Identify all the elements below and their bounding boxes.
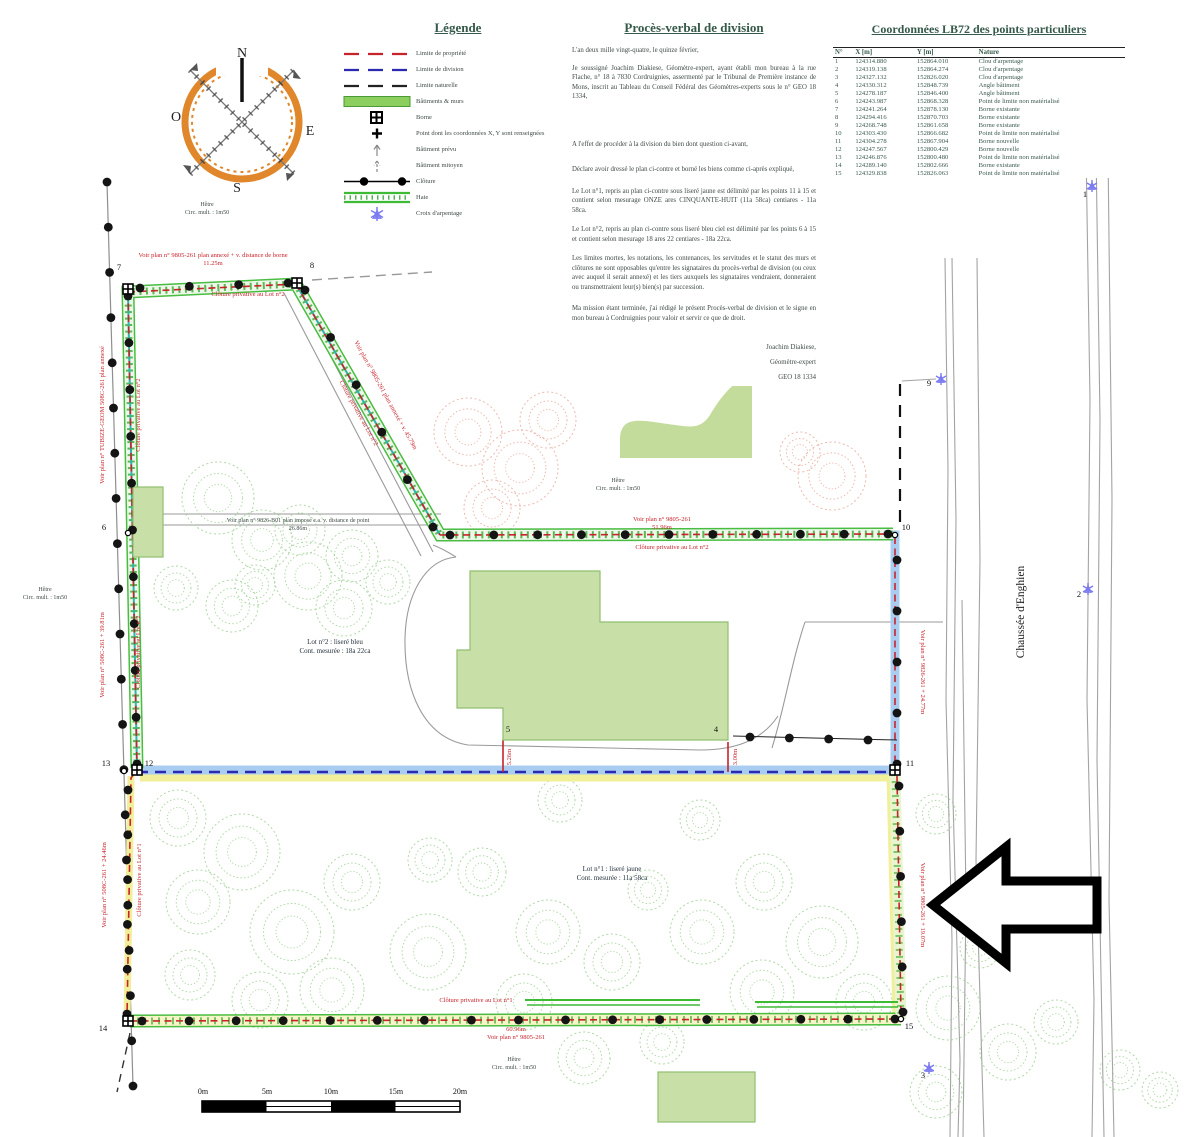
- fence-dot: [796, 1015, 805, 1024]
- tree-sketch: [922, 800, 949, 827]
- tree-sketch: [745, 863, 783, 901]
- coords-cell: 152861.658: [915, 122, 977, 130]
- plan-label: 10: [902, 522, 911, 532]
- fence-dot: [840, 530, 849, 539]
- plan-label: 3.00m: [732, 749, 739, 765]
- tree-sketch: [1148, 1078, 1172, 1102]
- coords-cell: Borne existante: [977, 122, 1125, 130]
- legend-item-label: Bâtiment mitoyen: [416, 162, 463, 169]
- tree-sketch: [792, 444, 807, 459]
- tree-sketch: [445, 409, 491, 455]
- small-building-left: [133, 487, 163, 557]
- plan-label: Clôture privative au Lot n°1: [439, 997, 512, 1004]
- fence-dot: [121, 810, 130, 819]
- tree-sketch: [173, 958, 207, 992]
- fence-dot: [895, 827, 904, 836]
- plan-label: Hêtre: [611, 478, 625, 484]
- tree-sketch: [161, 573, 191, 603]
- point-xy-icon: [338, 127, 416, 140]
- tree-sketch: [552, 792, 569, 809]
- tree-sketch: [536, 920, 560, 944]
- coords-row: 10124303.430152866.682Point de limite no…: [833, 130, 1125, 138]
- fence-dot: [279, 1016, 288, 1025]
- tree-sketch: [654, 1034, 671, 1051]
- plan-label: Hêtre: [507, 1057, 521, 1063]
- coords-cell: Angle bâtiment: [977, 82, 1125, 90]
- plan-label: Voir plan n° TUBIZE-GEOM 508C-261 plan a…: [99, 346, 106, 484]
- survey-plan-page: Voir plan n° 9805-261 plan annexé + v. d…: [0, 0, 1200, 1137]
- coords-cell: Borne nouvelle: [977, 138, 1125, 146]
- survey-cross-icon: [1087, 180, 1097, 192]
- coords-cell: 124304.278: [853, 138, 915, 146]
- plan-label: 5: [506, 724, 510, 734]
- tree-sketch: [640, 882, 655, 897]
- plan-label: Voir plan n° 9805-261: [487, 1034, 545, 1041]
- borne-marker: [123, 1016, 133, 1026]
- fence-dot: [123, 830, 132, 839]
- plan-label: 8: [310, 260, 314, 270]
- coords-column-header: X [m]: [853, 48, 915, 58]
- fence-dot: [844, 1015, 853, 1024]
- tree-sketch: [526, 910, 570, 954]
- fence-dot: [893, 709, 902, 718]
- legend-item: Limite de propriété: [338, 46, 578, 61]
- tree-sketch: [222, 596, 242, 616]
- fence-dot: [110, 449, 119, 458]
- plan-label: Cont. mesurée : 18a 22ca: [300, 647, 372, 655]
- tree-sketch: [324, 854, 380, 910]
- fence-dot: [746, 733, 755, 742]
- plan-label: O: [171, 110, 181, 125]
- legend-item: Borne: [338, 110, 578, 125]
- pv-paragraph: Les limites mortes, les notations, les c…: [572, 254, 816, 292]
- plan-label: 26.86m: [289, 526, 308, 532]
- tree-sketch: [936, 996, 960, 1020]
- tree-sketch: [214, 588, 249, 623]
- coords-cell: 124330.312: [853, 82, 915, 90]
- plan-label: Circ. mult. : 1m50: [23, 595, 67, 601]
- coords-cell: 124319.138: [853, 66, 915, 74]
- survey-cross-icon: [924, 1062, 934, 1074]
- fence-dot: [864, 736, 873, 745]
- tree-sketch: [593, 943, 631, 981]
- fence-dot: [373, 1016, 382, 1025]
- plan-label: 20m: [453, 1087, 468, 1096]
- tree-sketch: [194, 474, 243, 523]
- pv-paragraph: Je soussigné Joachim Diakiese, Géomètre-…: [572, 64, 816, 102]
- fence-dot: [898, 962, 907, 971]
- tree-sketch: [545, 785, 575, 815]
- tree-sketch: [916, 976, 980, 1040]
- fence-dot: [132, 713, 141, 722]
- tree-sketch: [380, 574, 397, 591]
- coords-cell: Clou d'arpentage: [977, 66, 1125, 74]
- legend-item: Clôture: [338, 174, 578, 189]
- tree-sketch: [680, 910, 724, 954]
- fence-dot: [103, 178, 112, 187]
- tree-sketch: [285, 553, 331, 599]
- coords-cell: 152800.480: [915, 154, 977, 162]
- tree-sketch: [241, 981, 279, 1019]
- coords-cell: 152826.020: [915, 74, 977, 82]
- plan-label: Voir plan n° 9826-B01 plan imposé e.a. v…: [227, 517, 370, 524]
- coords-row: 2124319.138152864.274Clou d'arpentage: [833, 66, 1125, 74]
- plan-label: 12: [145, 758, 154, 768]
- plan-label: Voir plan n° 9805-261: [633, 516, 691, 523]
- legend-item: Limite naturelle: [338, 78, 578, 93]
- plan-label: 15: [905, 1021, 914, 1031]
- coords-cell: Borne existante: [977, 114, 1125, 122]
- legend-panel: Légende Limite de propriétéLimite de div…: [338, 20, 578, 222]
- fence-dot: [702, 1015, 711, 1024]
- coords-cell: 3: [833, 74, 853, 82]
- tree-sketch: [166, 870, 230, 934]
- tree-sketch: [466, 856, 499, 889]
- pv-paragraph: Ma mission étant terminée, j'ai rédigé l…: [572, 304, 816, 323]
- coords-row: 13124246.876152800.480Point de limite no…: [833, 154, 1125, 162]
- survey-cross-icon: [936, 373, 946, 385]
- tree-sketch: [692, 812, 707, 827]
- plan-label: 5.26m: [506, 749, 513, 765]
- legend-item-label: Clôture: [416, 178, 436, 185]
- tree-sketch: [736, 854, 792, 910]
- coords-cell: 124303.430: [853, 130, 915, 138]
- plan-label: Clôture privative au Lot n°2: [135, 615, 142, 688]
- compass-rose: [183, 44, 301, 181]
- fence-dot: [113, 539, 122, 548]
- tree-sketch: [276, 916, 308, 948]
- pv-signature-line: Géomètre-expert: [572, 356, 816, 371]
- coords-cell: Clou d'arpentage: [977, 74, 1125, 82]
- tree-sketch: [168, 580, 185, 597]
- coords-row: 9124268.748152861.658Borne existante: [833, 122, 1125, 130]
- coords-row: 11124304.278152867.904Borne nouvelle: [833, 138, 1125, 146]
- pv-paragraph: A l'effet de procéder à la division du b…: [572, 140, 816, 150]
- tree-sketch: [928, 806, 943, 821]
- plan-label: Voir plan n° 508C-261 + 24.46m: [101, 842, 108, 928]
- borne-icon: [338, 111, 416, 124]
- coords-cell: 1: [833, 58, 853, 67]
- coords-cell: 12: [833, 146, 853, 154]
- fence-dot: [621, 530, 630, 539]
- plan-label: 2: [1077, 589, 1081, 599]
- coords-title: Coordonnées LB72 des points particuliers: [833, 22, 1125, 37]
- fence-dot: [326, 1016, 335, 1025]
- coords-cell: Point de limite non matérialisé: [977, 130, 1125, 138]
- plan-label: Lot n°1 : liseré jaune: [583, 865, 642, 873]
- fence-dot: [665, 530, 674, 539]
- plan-label: Circ. mult. : 1m50: [492, 1065, 536, 1071]
- bat-prev-icon: [338, 142, 416, 157]
- tree-sketch: [263, 903, 320, 960]
- tree-sketch: [1153, 1083, 1167, 1097]
- tree-sketch: [989, 1033, 1027, 1071]
- legend-item: Bâtiment mitoyen: [338, 158, 578, 173]
- legend-item: Haie: [338, 190, 578, 205]
- fence-dot: [123, 901, 132, 910]
- tree-sketch: [325, 589, 363, 627]
- plan-label: Hêtre: [200, 202, 214, 208]
- plan-label: 11: [906, 758, 914, 768]
- tree-sketch: [584, 934, 640, 990]
- tree-sketch: [159, 799, 197, 837]
- plan-label: Clôture privative au Lot n°1: [136, 843, 143, 916]
- tree-sketch: [926, 986, 970, 1030]
- fence-dot: [114, 584, 123, 593]
- plan-label: Clôture privative au Lot n°2: [211, 291, 284, 298]
- plan-label: S: [233, 181, 241, 196]
- coords-cell: Angle bâtiment: [977, 90, 1125, 98]
- coords-cell: 124243.987: [853, 98, 915, 106]
- fence-dot: [897, 917, 906, 926]
- tree-sketch: [537, 409, 558, 430]
- main-building: [457, 571, 728, 740]
- fence-dot: [377, 428, 386, 437]
- tree-sketch: [216, 826, 268, 878]
- fence-dot: [577, 530, 586, 539]
- coords-cell: Borne nouvelle: [977, 146, 1125, 154]
- coords-cell: 6: [833, 98, 853, 106]
- fence-dot: [884, 530, 893, 539]
- coords-cell: 124314.880: [853, 58, 915, 67]
- fence-dot: [185, 282, 194, 291]
- legend-item-label: Croix d'arpentage: [416, 210, 462, 217]
- prop-line-icon: [338, 49, 416, 59]
- plan-label: 15m: [389, 1087, 404, 1096]
- fence-dot: [403, 475, 412, 484]
- fence-dot: [125, 946, 134, 955]
- coords-column-header: N°: [833, 48, 853, 58]
- coords-cell: Point de limite non matérialisé: [977, 98, 1125, 106]
- fence-dot: [124, 338, 133, 347]
- tree-sketch: [333, 863, 371, 901]
- legend-title: Légende: [338, 20, 578, 36]
- borne-marker: [123, 284, 133, 294]
- fence-dot: [514, 1016, 523, 1025]
- tree-sketch: [808, 928, 835, 955]
- plan-label: 51.96m: [652, 524, 672, 531]
- coords-cell: 9: [833, 122, 853, 130]
- plan-label: Cont. mesurée : 11a 58ca: [577, 874, 649, 882]
- haie-icon: [338, 191, 416, 204]
- tree-sketch: [1106, 1056, 1133, 1083]
- fence-dot: [127, 1036, 136, 1045]
- fence-dot: [352, 380, 361, 389]
- coords-cell: 124246.876: [853, 154, 915, 162]
- fence-dot: [117, 675, 126, 684]
- tree-sketch: [150, 790, 206, 846]
- legend-item-label: Point dont les coordonnées X, Y sont ren…: [416, 130, 544, 137]
- tree-sketch: [251, 529, 274, 552]
- fence-dot: [489, 531, 498, 540]
- legend-rows: Limite de propriétéLimite de divisionLim…: [338, 46, 578, 221]
- tree-sketch: [1112, 1062, 1127, 1077]
- tree-sketch: [334, 538, 369, 573]
- coords-cell: 152848.739: [915, 82, 977, 90]
- fence-dot: [116, 630, 125, 639]
- tree-sketch: [574, 1048, 594, 1068]
- limit-point-marker: [121, 768, 126, 773]
- tree-sketch: [206, 580, 258, 632]
- coords-row: 7124241.264152878.130Borne existante: [833, 106, 1125, 114]
- tree-sketch: [1048, 1014, 1065, 1031]
- coords-cell: 152826.063: [915, 170, 977, 178]
- div-line-icon: [338, 65, 416, 75]
- plan-label: Clôture privative au Lot n°2: [635, 544, 708, 551]
- plan-label: 1: [1083, 189, 1087, 199]
- tree-sketch: [798, 918, 847, 967]
- coords-cell: 152864.010: [915, 58, 977, 67]
- tree-sketch: [670, 900, 734, 964]
- coords-cell: 152868.328: [915, 98, 977, 106]
- tree-sketch: [300, 958, 364, 1022]
- legend-item-label: Bâtiments & murs: [416, 98, 464, 105]
- tree-sketch: [809, 453, 855, 499]
- fence-dot: [824, 735, 833, 744]
- plan-label: 13: [102, 758, 111, 768]
- plan-label: 11.25m: [203, 260, 222, 267]
- tree-sketch: [786, 438, 813, 465]
- tree-sketch: [176, 880, 220, 924]
- fence-dot: [893, 607, 902, 616]
- legend-item-label: Limite naturelle: [416, 82, 458, 89]
- vegetation-patch: [620, 376, 752, 458]
- fence-dot: [118, 720, 127, 729]
- borne-marker: [890, 765, 900, 775]
- coords-row: 6124243.987152868.328Point de limite non…: [833, 98, 1125, 106]
- plan-label: 7: [117, 262, 121, 272]
- tree-sketch: [520, 392, 576, 448]
- borne-marker: [132, 765, 142, 775]
- fence-dot: [129, 1082, 138, 1091]
- fence-dot: [112, 494, 121, 503]
- fence-dot: [122, 856, 131, 865]
- legend-item: Bâtiments & murs: [338, 94, 578, 109]
- limit-point-marker: [892, 532, 897, 537]
- legend-item-label: Limite de propriété: [416, 50, 466, 57]
- coords-cell: 124294.416: [853, 114, 915, 122]
- fence-dot: [752, 530, 761, 539]
- fence-dot: [533, 530, 542, 539]
- coords-cell: 13: [833, 154, 853, 162]
- coords-cell: 152864.274: [915, 66, 977, 74]
- plan-label: 60.96m: [506, 1026, 526, 1033]
- lot1-boundary: [127, 776, 896, 1018]
- tree-sketch: [181, 966, 200, 985]
- bat-mit-icon: [338, 158, 416, 173]
- limit-point-marker: [125, 530, 130, 535]
- coords-cell: 11: [833, 138, 853, 146]
- fence-dot: [893, 556, 902, 565]
- lot1-hedge: [130, 774, 901, 1021]
- fence-dot: [124, 786, 133, 795]
- tree-sketch: [373, 567, 403, 597]
- tree-sketch: [414, 938, 443, 967]
- fence-dot: [326, 333, 335, 342]
- tree-sketch: [786, 906, 858, 978]
- tree-sketch: [753, 871, 774, 892]
- legend-item: Point dont les coordonnées X, Y sont ren…: [338, 126, 578, 141]
- tree-sketch: [506, 454, 535, 483]
- coords-table: N°X [m]Y [m]Nature 1124314.880152864.010…: [833, 47, 1125, 178]
- tree-sketch: [434, 398, 502, 466]
- coords-cell: 152878.130: [915, 106, 977, 114]
- tree-sketch: [686, 806, 713, 833]
- coords-cell: 152870.703: [915, 114, 977, 122]
- fence-dot: [108, 358, 117, 367]
- plan-label: 5m: [262, 1087, 273, 1096]
- tree-sketch: [516, 900, 580, 964]
- plan-label: 14: [99, 1023, 108, 1033]
- tree-sketch: [473, 863, 491, 881]
- tree-sketch: [186, 890, 210, 914]
- tree-sketch: [415, 845, 445, 875]
- coords-cell: Borne existante: [977, 106, 1125, 114]
- tree-sketch: [228, 838, 257, 867]
- tree-sketch: [1041, 1007, 1071, 1037]
- pv-paragraph: L'an deux mille vingt-quatre, le quinze …: [572, 46, 816, 56]
- tree-sketch: [690, 920, 714, 944]
- tree-sketch: [819, 463, 845, 489]
- fence-dot: [136, 284, 145, 293]
- fence-dot: [105, 268, 114, 277]
- plan-label: Voir plan n° 9805-261 plan annexé + v. d…: [138, 252, 287, 259]
- legend-item-label: Borne: [416, 114, 432, 121]
- fence-dot: [185, 1016, 194, 1025]
- coords-row: 1124314.880152864.010Clou d'arpentage: [833, 58, 1125, 67]
- tree-sketch: [482, 430, 558, 506]
- fence-dot: [284, 279, 293, 288]
- fence-dot: [138, 1017, 147, 1026]
- coords-column-header: Y [m]: [915, 48, 977, 58]
- tree-sketch: [422, 852, 439, 869]
- fence-dot: [126, 991, 135, 1000]
- plan-label: E: [306, 124, 315, 139]
- tree-sketch: [390, 914, 466, 990]
- coords-cell: 124247.567: [853, 146, 915, 154]
- coords-cell: 124329.838: [853, 170, 915, 178]
- pv-signature-line: Joachim Diakiese,: [572, 341, 816, 356]
- tree-sketch: [997, 1041, 1018, 1062]
- pv-paragraph: Le Lot n°1, repris au plan ci-contre sou…: [572, 187, 816, 216]
- pv-body: L'an deux mille vingt-quatre, le quinze …: [572, 46, 816, 323]
- plan-label: 0m: [198, 1087, 209, 1096]
- plan-label: Circ. mult. : 1m50: [185, 210, 229, 216]
- pv-paragraph: Déclare avoir dressé le plan ci-contre e…: [572, 165, 816, 175]
- coords-row: 15124329.838152826.063Point de limite no…: [833, 170, 1125, 178]
- fence-dot: [893, 658, 902, 667]
- pv-paragraph: Le Lot n°2, repris au plan ci-contre sou…: [572, 225, 816, 244]
- coords-cell: 124241.264: [853, 106, 915, 114]
- survey-cross-icon: [1083, 583, 1093, 595]
- fence-dot: [109, 404, 118, 413]
- fence-dot: [107, 313, 116, 322]
- plan-label: Circ. mult. : 1m50: [596, 486, 640, 492]
- coords-column-header: Nature: [977, 48, 1125, 58]
- legend-item-label: Bâtiment prévu: [416, 146, 456, 153]
- fence-dot: [749, 1015, 758, 1024]
- coords-cell: 5: [833, 90, 853, 98]
- plan-label: Hêtre: [38, 587, 52, 593]
- coords-cell: Point de limite non matérialisé: [977, 154, 1125, 162]
- coords-cell: 152866.682: [915, 130, 977, 138]
- coords-panel: Coordonnées LB72 des points particuliers…: [833, 22, 1125, 178]
- borne-marker: [292, 278, 302, 288]
- legend-item: Limite de division: [338, 62, 578, 77]
- coords-cell: 152800.429: [915, 146, 977, 154]
- tree-sketch: [250, 890, 334, 974]
- fence-dot: [429, 523, 438, 532]
